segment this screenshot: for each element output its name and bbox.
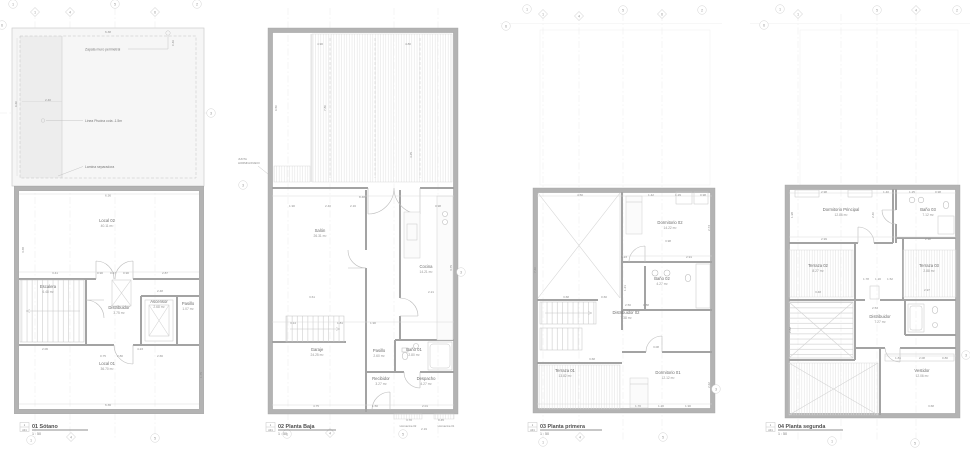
dimension-text: 7.80: [323, 105, 327, 111]
room-area-label: 3.27 m²: [375, 382, 387, 386]
room-label: Vestidor: [914, 368, 930, 373]
room-area-label: 1.07 m²: [182, 307, 194, 311]
room-area-label: 7.27 m²: [874, 320, 886, 324]
dimension-text: 0.88: [643, 303, 649, 307]
grid-bubble-number: 4: [69, 10, 71, 14]
dimension-text: 7.40: [533, 267, 537, 273]
grid-bubble-number: 4: [915, 8, 917, 12]
room-label: Dormitorio 01: [655, 370, 681, 375]
room-label: Ascensor: [150, 299, 168, 304]
segunda-stairs: [789, 302, 853, 358]
annotation-lamina: Lamina separadora: [85, 165, 114, 169]
dimension-text: 4.80: [405, 42, 411, 46]
dimension-text: 2.48: [157, 289, 163, 293]
grid-bubble-number: 5: [914, 441, 916, 445]
grid-bubble-number: 5: [876, 8, 878, 12]
dimension-text: 2.87: [162, 271, 168, 275]
grid-bubble-number: 1: [797, 12, 799, 16]
room-label: Baño 03: [920, 207, 936, 212]
dimension-text: 2.53: [872, 306, 878, 310]
sheet-ref: A01: [530, 429, 535, 432]
dimension-text: 6.36: [105, 194, 111, 198]
room-label: Distribuidor: [869, 314, 891, 319]
dimension-text: 3.41: [52, 271, 58, 275]
room-label: Dormitorio 02: [657, 220, 683, 225]
room-area-label: 24.25 m²: [310, 353, 324, 357]
room-label: Salón: [315, 228, 326, 233]
dimension-text: 2.16: [350, 204, 356, 208]
door-escalera: [86, 300, 104, 318]
hornacina-01-label: Hornacina 01: [438, 424, 455, 428]
room-area-label: 2.60 m²: [373, 354, 385, 358]
door-dormitorio01: [646, 336, 662, 352]
room-area-label: 36.70 m²: [100, 367, 114, 371]
drawing-canvas: Zapata muro perimetral Linea Piscina cot…: [0, 0, 970, 450]
dimension-text: 0.46: [171, 40, 175, 46]
room-label: Local 01: [99, 361, 116, 366]
plan-sotano: Zapata muro perimetral Linea Piscina cot…: [0, 0, 215, 444]
view-title: 04 Planta segunda: [778, 424, 826, 430]
dimension-text: 3.38: [21, 247, 25, 253]
dimension-text: 1.90: [685, 404, 691, 408]
dimension-text: 0.47: [110, 271, 116, 275]
dimension-text: 2.91: [686, 255, 692, 259]
underlay-outline: [800, 30, 958, 185]
room-label: Baño 01: [406, 347, 422, 352]
view-scale: 1 : 50: [778, 432, 787, 436]
dimension-text: 4.25: [409, 152, 413, 158]
dimension-text: 1.90: [289, 204, 295, 208]
dimension-text: 2.01: [422, 404, 428, 408]
dimension-text: 3.61: [309, 295, 315, 299]
dimension-text: 6.60: [14, 101, 18, 107]
sheet-ref: A01: [268, 429, 273, 432]
dimension-text: 2.62: [707, 382, 711, 388]
room-label: Distribuidor: [108, 305, 130, 310]
dimension-text: 3.68: [589, 357, 595, 361]
terraza01-hatch: [539, 365, 620, 409]
dimension-text: 2.97: [924, 288, 930, 292]
dimension-text: 4.23: [137, 347, 143, 351]
grid-bubble-number: 1: [779, 7, 781, 11]
hornacinas: Hornacina 02 Hornacina 01: [394, 414, 455, 428]
roof-terrace: [789, 363, 878, 415]
dimension-text: 0.90: [97, 271, 103, 275]
room-area-label: 14.22 m²: [663, 226, 677, 230]
room-label: Despacho: [417, 376, 437, 381]
grid-bubble-number: 6: [661, 12, 663, 16]
room-area-label: 12.06 m²: [915, 374, 929, 378]
dimension-text: 1.98: [790, 212, 794, 218]
dimension-text: 1.23: [621, 255, 627, 259]
hornacina-02-label: Hornacina 02: [400, 424, 417, 428]
dimension-text: 2.98: [821, 190, 827, 194]
room-area-label: 4.27 m²: [420, 382, 432, 386]
dimension-text: 0.98: [435, 204, 441, 208]
grid-bubble-number: 5: [622, 8, 624, 12]
junta-line2: HORMIGONADO: [238, 161, 261, 165]
grid-bubble-number: 5: [154, 436, 156, 440]
aseo-fixtures: [908, 304, 938, 332]
room-label: Terraza 03: [919, 263, 939, 268]
dimension-text: 2.21: [428, 290, 434, 294]
grid-bubble-number: 6: [1, 23, 3, 27]
dimension-text: 0.75: [100, 354, 106, 358]
junta-annotation: JUNTA HORMIGONADO: [238, 157, 268, 174]
annotation-piscina: Linea Piscina cota -1.5m: [85, 119, 122, 123]
view-title: 01 Sótano: [32, 424, 58, 430]
dimension-text: 2.80: [117, 354, 123, 358]
grid-bubble-number: 1: [526, 7, 528, 11]
room-area-label: 4.27 m²: [656, 282, 668, 286]
room-label: Terraza 02: [808, 263, 828, 268]
grid-bubble-number: 5: [114, 2, 116, 6]
room-label: Distribuidor 02: [613, 310, 641, 315]
baja-stairs: [286, 316, 344, 342]
annotation-zapata: Zapata muro perimetral: [85, 48, 120, 52]
grid-bubble-number: 2: [701, 8, 703, 12]
view-title-sotano: 1 A01 01 Sótano 1 : 50: [20, 423, 88, 437]
view-scale: 1 : 50: [32, 432, 41, 436]
corridor-closet: [870, 286, 879, 299]
dimension-text: 1.81: [337, 321, 343, 325]
dimension-text: 0.98: [935, 190, 941, 194]
room-label: Recibidor: [372, 376, 390, 381]
dimension-text: 1.75: [199, 372, 203, 378]
dimension-text: 0.98: [700, 193, 706, 197]
dimension-text: 3.68: [563, 295, 569, 299]
room-area-label: 2.88 m²: [923, 269, 935, 273]
room-area-label: 2.80 m²: [408, 353, 420, 357]
grid-bubble-number: 4: [578, 14, 580, 18]
dimension-text: 2.08: [919, 356, 925, 360]
primera-stairs: [540, 302, 596, 350]
dimension-text: 1.81: [895, 356, 901, 360]
dimension-text: 1.29: [675, 193, 681, 197]
door-dormitorio02: [629, 246, 645, 262]
dimension-text: 3.98: [665, 239, 671, 243]
room-area-label: 40.11 m²: [101, 224, 115, 228]
dimension-text: 8.48: [359, 195, 365, 199]
dimension-text: 1.42: [648, 193, 654, 197]
room-area-label: 12.86 m²: [834, 213, 848, 217]
room-area-label: 13.82 m²: [558, 374, 572, 378]
dimension-text: 1.52: [887, 277, 893, 281]
dimension-text: 1.20: [875, 277, 881, 281]
grid-bubble-number: 1: [542, 440, 544, 444]
view-title-baja: 1 A01 02 Planta Baja 1 : 50: [266, 423, 336, 437]
dimension-text: 3.75: [449, 265, 453, 271]
dimension-text: 6.36: [105, 403, 111, 407]
bano02-fixtures: [652, 264, 710, 308]
view-title-segunda: 1 A01 04 Planta segunda 1 : 50: [766, 423, 843, 437]
dimension-text: 2.82: [788, 327, 792, 333]
dimension-text: 2.06: [42, 347, 48, 351]
dimension-text: 0.60: [601, 295, 607, 299]
grid-bubble-number: 3: [965, 353, 967, 357]
dimension-text: 1.90: [370, 321, 376, 325]
floor-plan-sheet: Zapata muro perimetral Linea Piscina cot…: [0, 0, 970, 450]
dimension-text: 6.38: [105, 30, 111, 34]
dimension-text: 1.70: [635, 404, 641, 408]
dimension-text: 2.40: [325, 204, 331, 208]
patio: [274, 34, 452, 182]
room-area-label: 7.38 m²: [620, 316, 632, 320]
room-label: Cocina: [419, 264, 433, 269]
dimension-text: 1.78: [863, 277, 869, 281]
dimension-text: 3.08: [653, 345, 659, 349]
grid-bubble-number: 2: [956, 8, 958, 12]
dimension-text: 1.21: [623, 285, 627, 291]
dimension-text: 2.73: [707, 225, 711, 231]
grid-bubble-number: 6: [505, 24, 507, 28]
plan-segunda: Dormitorio Principal12.86 m²Baño 037.12 …: [750, 5, 970, 448]
dimension-text: 0.90: [123, 271, 129, 275]
grid-bubble-number: 6: [763, 23, 765, 27]
dimension-text: 2.98: [925, 237, 931, 241]
grid-bubble-number: 6: [154, 10, 156, 14]
dimension-text: 1.50: [372, 404, 378, 408]
grid-bubble-number: 4: [329, 431, 331, 435]
grid-bubble-number: 3: [242, 183, 244, 187]
room-area-label: 7.12 m²: [922, 213, 934, 217]
view-title-primera: 1 A01 03 Planta primera 1 : 50: [528, 423, 602, 437]
view-scale: 1 : 50: [278, 432, 287, 436]
underlay-outline: [540, 30, 710, 185]
door-cocina: [400, 298, 418, 316]
dimension-text: 2.40: [871, 212, 875, 218]
grid-bubble-number: 1: [831, 439, 833, 443]
dimension-text: 2.99: [821, 237, 827, 241]
grid-bubble-number: 4: [579, 435, 581, 439]
dimension-text: 2.50: [625, 303, 631, 307]
sheet-ref: A01: [768, 429, 773, 432]
dimension-text: 2.19: [421, 427, 427, 431]
dimension-text: 2.66: [157, 354, 163, 358]
dimension-text: 1.25: [909, 190, 915, 194]
plan-primera: Dormitorio 0214.22 m²Baño 024.27 m²Distr…: [500, 5, 722, 447]
grid-bubble-number: 3: [210, 111, 212, 115]
dimension-text: 4.50: [577, 193, 583, 197]
dimension-text: 0.45: [438, 418, 444, 422]
dimension-text: 2.40: [45, 98, 51, 102]
plan-baja: JUNTA HORMIGONADO: [238, 8, 465, 440]
room-label: Local 02: [99, 218, 116, 223]
room-label: Terraza 01: [555, 368, 575, 373]
room-area-label: 3.75 m²: [113, 311, 125, 315]
room-label: Pasillo: [182, 301, 195, 306]
dimension-text: 3.48: [815, 290, 821, 294]
room-label: Pasillo: [373, 348, 386, 353]
grid-bubble-number: 1: [30, 438, 32, 442]
room-label: Baño 02: [654, 276, 670, 281]
dormitorio-principal-closets: [795, 190, 872, 197]
dimension-text: 0.80: [942, 356, 948, 360]
door-dormitorio-principal: [858, 227, 874, 243]
room-area-label: 14.21 m²: [419, 270, 433, 274]
view-title: 03 Planta primera: [540, 424, 586, 430]
grid-bubble-number: 1: [542, 12, 544, 16]
grid-bubble-number: 2: [196, 2, 198, 6]
room-area-label: 26.31 m²: [313, 234, 327, 238]
double-door: [96, 261, 133, 279]
dimension-text: 3.70: [406, 418, 412, 422]
dimension-text: 1.40: [883, 190, 889, 194]
view-title: 02 Planta Baja: [278, 424, 316, 430]
dimension-lines: [272, 196, 454, 405]
dimension-text: 4.75: [313, 404, 319, 408]
grid-bubble-number: 5: [662, 435, 664, 439]
dimension-text: 3.68: [928, 404, 934, 408]
room-area-label: 8.27 m²: [812, 269, 824, 273]
room-label: Escalera: [40, 284, 57, 289]
room-area-label: 2.68 m²: [153, 305, 165, 309]
grid-bubble-number: 4: [70, 435, 72, 439]
dimension-text: 4.90: [317, 42, 323, 46]
grid-bubble-number: 1: [12, 2, 14, 6]
room-area-label: 12.12 m²: [661, 376, 675, 380]
grid-bubble-number: 1: [34, 10, 36, 14]
room-label: Garaje: [311, 347, 324, 352]
grid-bubble-number: 3: [460, 270, 462, 274]
dimension-text: 1.20: [658, 404, 664, 408]
dimension-text: 6.50: [274, 105, 278, 111]
grid-bubble-number: 5: [402, 432, 404, 436]
view-scale: 1 : 50: [540, 432, 549, 436]
room-area-label: 6.48 m²: [42, 290, 54, 294]
sheet-ref: A01: [22, 429, 27, 432]
room-label: Dormitorio Principal: [823, 207, 860, 212]
door-salon: [348, 250, 366, 268]
grid-bubble-number: 3: [715, 387, 717, 391]
dimension-text: 3.14: [290, 321, 296, 325]
pool-zone: Zapata muro perimetral Linea Piscina cot…: [12, 28, 204, 186]
